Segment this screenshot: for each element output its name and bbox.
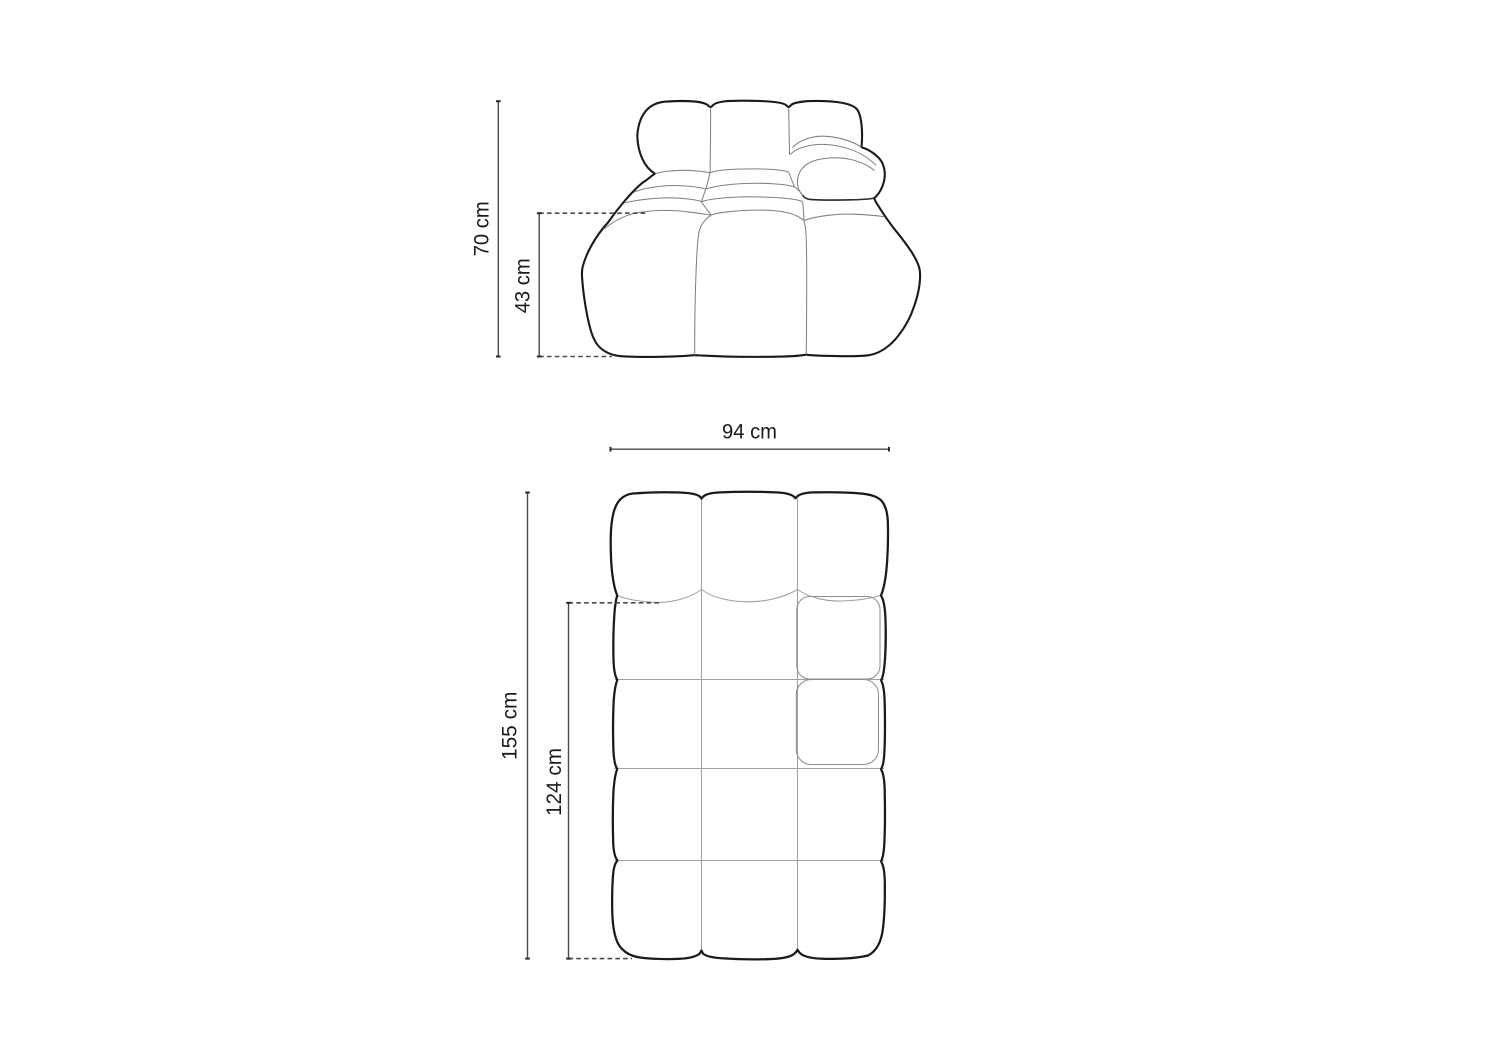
svg-text:124 cm: 124 cm: [542, 748, 566, 816]
svg-text:94 cm: 94 cm: [722, 419, 777, 443]
svg-text:155 cm: 155 cm: [498, 692, 522, 761]
svg-text:43 cm: 43 cm: [511, 258, 535, 313]
svg-text:70 cm: 70 cm: [470, 201, 494, 256]
